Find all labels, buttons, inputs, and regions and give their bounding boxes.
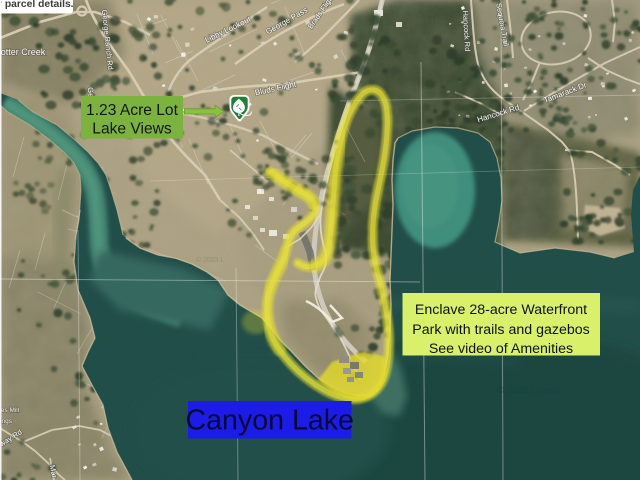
svg-text:es Mill: es Mill (1, 407, 20, 414)
svg-text:r parcel details.: r parcel details. (0, 0, 74, 10)
svg-text:1.23 Acre Lot: 1.23 Acre Lot (86, 102, 179, 119)
svg-text:Park with trails and gazebos: Park with trails and gazebos (412, 322, 589, 338)
svg-text:otter Creek: otter Creek (1, 47, 46, 57)
svg-text:© 2023 Google: © 2023 Google (497, 385, 561, 396)
svg-text:Enclave 28-acre Waterfront: Enclave 28-acre Waterfront (415, 302, 587, 318)
svg-text:Canyon Lake: Canyon Lake (185, 405, 354, 437)
svg-text:ings: ings (0, 418, 13, 425)
svg-text:© 2023 L: © 2023 L (196, 256, 225, 264)
svg-text:See video of Amenities: See video of Amenities (429, 341, 573, 357)
svg-text:Lake Views: Lake Views (92, 120, 172, 137)
